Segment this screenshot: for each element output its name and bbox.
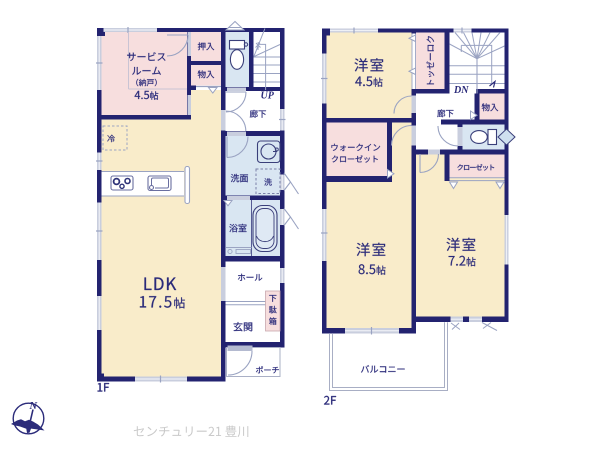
svg-text:UP: UP — [261, 91, 275, 102]
svg-text:DN: DN — [453, 85, 469, 96]
